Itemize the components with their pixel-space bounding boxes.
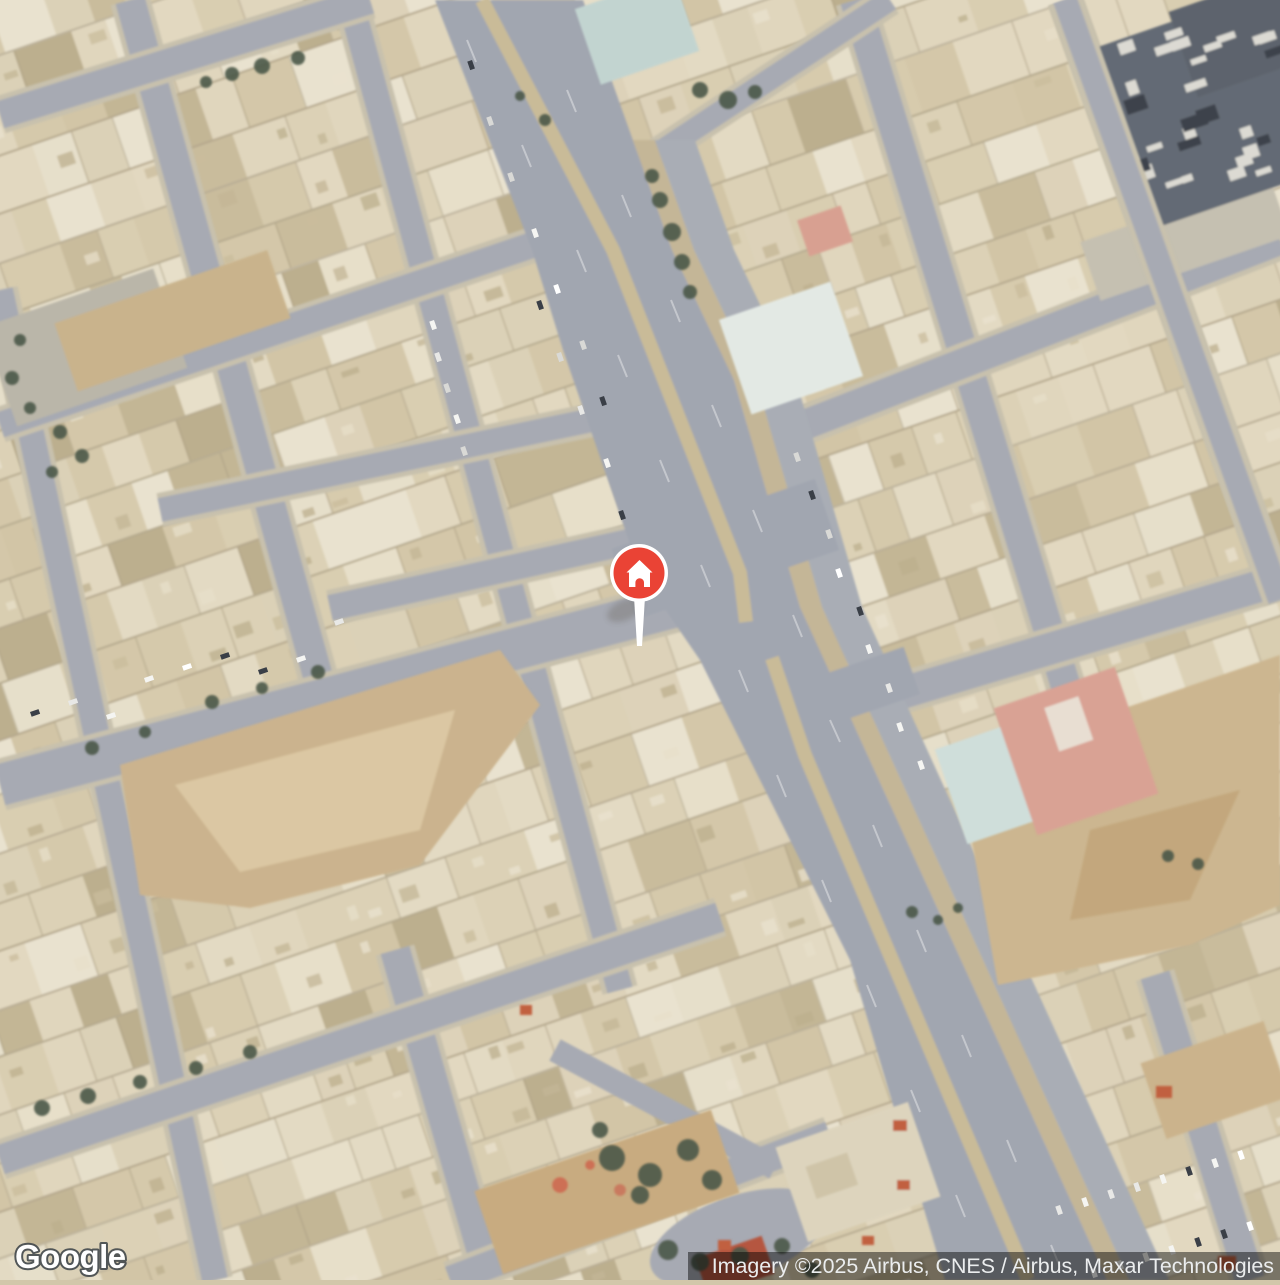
svg-text:Google: Google [15, 1238, 126, 1275]
svg-text:Imagery ©2025 Airbus, CNES / A: Imagery ©2025 Airbus, CNES / Airbus, Max… [712, 1254, 1274, 1278]
